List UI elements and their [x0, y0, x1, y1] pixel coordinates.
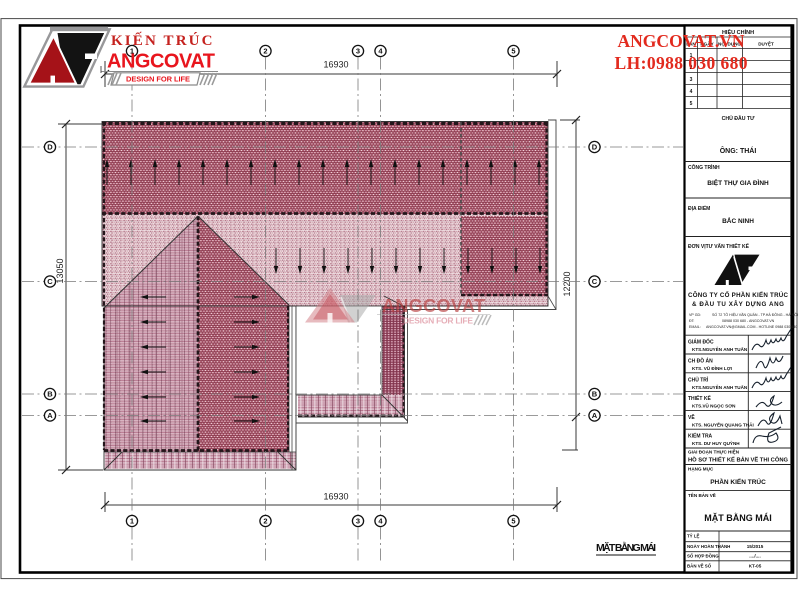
svg-text:ĐƠN VỊTƯ VẤN THIẾT KẾ: ĐƠN VỊTƯ VẤN THIẾT KẾ	[688, 243, 750, 250]
svg-text:THIẾT KẾ: THIẾT KẾ	[688, 395, 711, 402]
svg-text:TÊN BẢN VẼ: TÊN BẢN VẼ	[688, 491, 716, 498]
svg-text:5: 5	[690, 101, 693, 107]
svg-text:BẮC NINH: BẮC NINH	[722, 216, 754, 225]
svg-text:4: 4	[690, 89, 693, 95]
svg-text:EMAIL:: EMAIL:	[689, 325, 701, 329]
svg-text:B: B	[592, 390, 598, 399]
svg-text:2: 2	[263, 517, 267, 526]
svg-text:1: 1	[130, 517, 134, 526]
svg-text:HỒ SƠ THIẾT KẾ BẢN VẼ THI CÔNG: HỒ SƠ THIẾT KẾ BẢN VẼ THI CÔNG	[688, 456, 788, 464]
svg-text:BẢN VẼ SỐ: BẢN VẼ SỐ	[687, 564, 712, 569]
svg-text:3: 3	[356, 517, 360, 526]
svg-text:LH:0988 030 680: LH:0988 030 680	[615, 53, 748, 73]
svg-text:KIẾN TRÚC: KIẾN TRÚC	[111, 32, 215, 49]
svg-text:KTS. VŨ ĐÌNH LỢI: KTS. VŨ ĐÌNH LỢI	[692, 364, 732, 371]
svg-text:CÔNG TY CỔ PHẦN KIẾN TRÚC: CÔNG TY CỔ PHẦN KIẾN TRÚC	[688, 291, 789, 299]
svg-text:2: 2	[263, 47, 267, 56]
svg-text:A: A	[592, 411, 598, 420]
svg-text:NGÀY HOÀN THÀNH: NGÀY HOÀN THÀNH	[687, 544, 730, 549]
svg-text:& ĐẦU TU XÂY DỰNG ANG: & ĐẦU TU XÂY DỰNG ANG	[692, 301, 784, 308]
svg-text:08988 030 680 - ANGCOVAT.VN: 08988 030 680 - ANGCOVAT.VN	[722, 319, 775, 323]
svg-text:DESIGN FOR LIFE: DESIGN FOR LIFE	[403, 316, 473, 326]
svg-text:ĐT:: ĐT:	[689, 319, 695, 323]
svg-text:HẠNG MỤC: HẠNG MỤC	[688, 467, 714, 472]
svg-text:C: C	[47, 277, 53, 286]
svg-text:TỶ LỆ: TỶ LỆ	[687, 534, 700, 539]
svg-text:KTS. NGUYỄN QUANG THÁI: KTS. NGUYỄN QUANG THÁI	[692, 421, 754, 427]
svg-text:13050: 13050	[55, 258, 65, 283]
svg-text:SỐ HỢP ĐỒNG: SỐ HỢP ĐỒNG	[687, 554, 719, 559]
svg-text:12200: 12200	[562, 271, 572, 296]
svg-text:DESIGN FOR LIFE: DESIGN FOR LIFE	[126, 75, 190, 84]
svg-text:A: A	[47, 411, 53, 420]
svg-text:KT-05: KT-05	[749, 564, 762, 569]
svg-text:D: D	[592, 143, 598, 152]
svg-text:B: B	[47, 390, 53, 399]
svg-text:16930: 16930	[323, 492, 348, 502]
svg-text:ANGCOVAT: ANGCOVAT	[107, 51, 215, 73]
svg-text:KTS.NGUYỄN ANH TUẤN: KTS.NGUYỄN ANH TUẤN	[692, 384, 748, 390]
svg-text:..../....: ..../....	[749, 554, 761, 559]
svg-text:5: 5	[511, 517, 515, 526]
svg-text:CH ĐỒ ÁN: CH ĐỒ ÁN	[688, 358, 713, 365]
svg-text:GIAI ĐOẠN THỰC HIỆN: GIAI ĐOẠN THỰC HIỆN	[688, 448, 740, 455]
svg-text:3: 3	[690, 77, 693, 83]
svg-text:ÔNG: THÁI: ÔNG: THÁI	[720, 146, 757, 155]
svg-text:KTS.NGUYỄN ANH TUẤN: KTS.NGUYỄN ANH TUẤN	[692, 346, 748, 352]
svg-text:VẼ: VẼ	[688, 414, 695, 421]
svg-text:SỐ 72 TÔ HIỆU VĂN QUÁN - TP.HÀ: SỐ 72 TÔ HIỆU VĂN QUÁN - TP.HÀ ĐÔNG - HÀ…	[712, 312, 798, 317]
svg-text:15/2015: 15/2015	[747, 544, 764, 549]
svg-text:CHỦ TRÌ: CHỦ TRÌ	[688, 375, 709, 383]
svg-text:ĐỊA ĐIỂM: ĐỊA ĐIỂM	[688, 205, 710, 212]
svg-text:GIÁM ĐỐC: GIÁM ĐỐC	[688, 339, 714, 346]
svg-text:16930: 16930	[323, 60, 348, 70]
svg-text:ANGCOVAT.VN@GMAIL.COM - HOTLIN: ANGCOVAT.VN@GMAIL.COM - HOTLINE 0988 030…	[706, 325, 797, 329]
svg-text:ANGCOVAT: ANGCOVAT	[382, 296, 485, 316]
svg-text:D: D	[47, 143, 53, 152]
svg-text:C: C	[592, 277, 598, 286]
svg-text:DUYỆT: DUYỆT	[758, 40, 774, 47]
svg-text:KTS.VŨ NGỌC SƠN: KTS.VŨ NGỌC SƠN	[692, 403, 736, 409]
svg-text:KTS. DƯ HUY QUỲNH: KTS. DƯ HUY QUỲNH	[692, 440, 740, 446]
svg-text:VP GD:: VP GD:	[689, 313, 701, 317]
svg-text:CÔNG TRÌNH: CÔNG TRÌNH	[688, 163, 720, 171]
svg-text:BIỆT THỰ GIA ĐÌNH: BIỆT THỰ GIA ĐÌNH	[707, 178, 769, 187]
svg-text:MẶT BẰNG MÁI: MẶT BẰNG MÁI	[704, 513, 772, 523]
svg-text:KIỂM TRA: KIỂM TRA	[688, 433, 713, 440]
svg-text:ANGCOVAT.VN: ANGCOVAT.VN	[618, 31, 745, 51]
svg-text:5: 5	[511, 47, 515, 56]
svg-text:CHỦ ĐẦU TƯ: CHỦ ĐẦU TƯ	[722, 115, 756, 122]
svg-text:MẶT BẰNG MÁI: MẶT BẰNG MÁI	[596, 541, 656, 554]
svg-text:3: 3	[356, 47, 360, 56]
